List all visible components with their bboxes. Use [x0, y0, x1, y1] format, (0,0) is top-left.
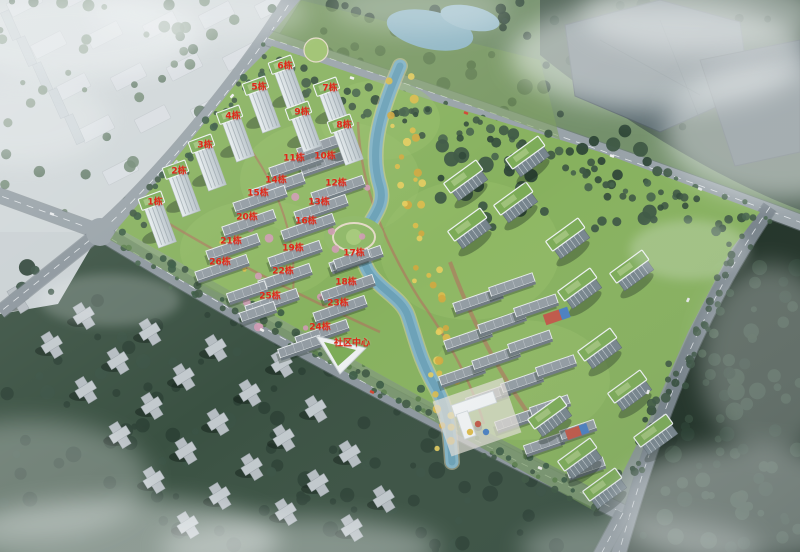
rendering-canvas — [0, 0, 800, 552]
aerial-rendering: 1栋2栋3栋4栋5栋6栋7栋8栋9栋10栋11栋12栋13栋14栋15栋16栋1… — [0, 0, 800, 552]
clouds-haze — [0, 0, 800, 552]
